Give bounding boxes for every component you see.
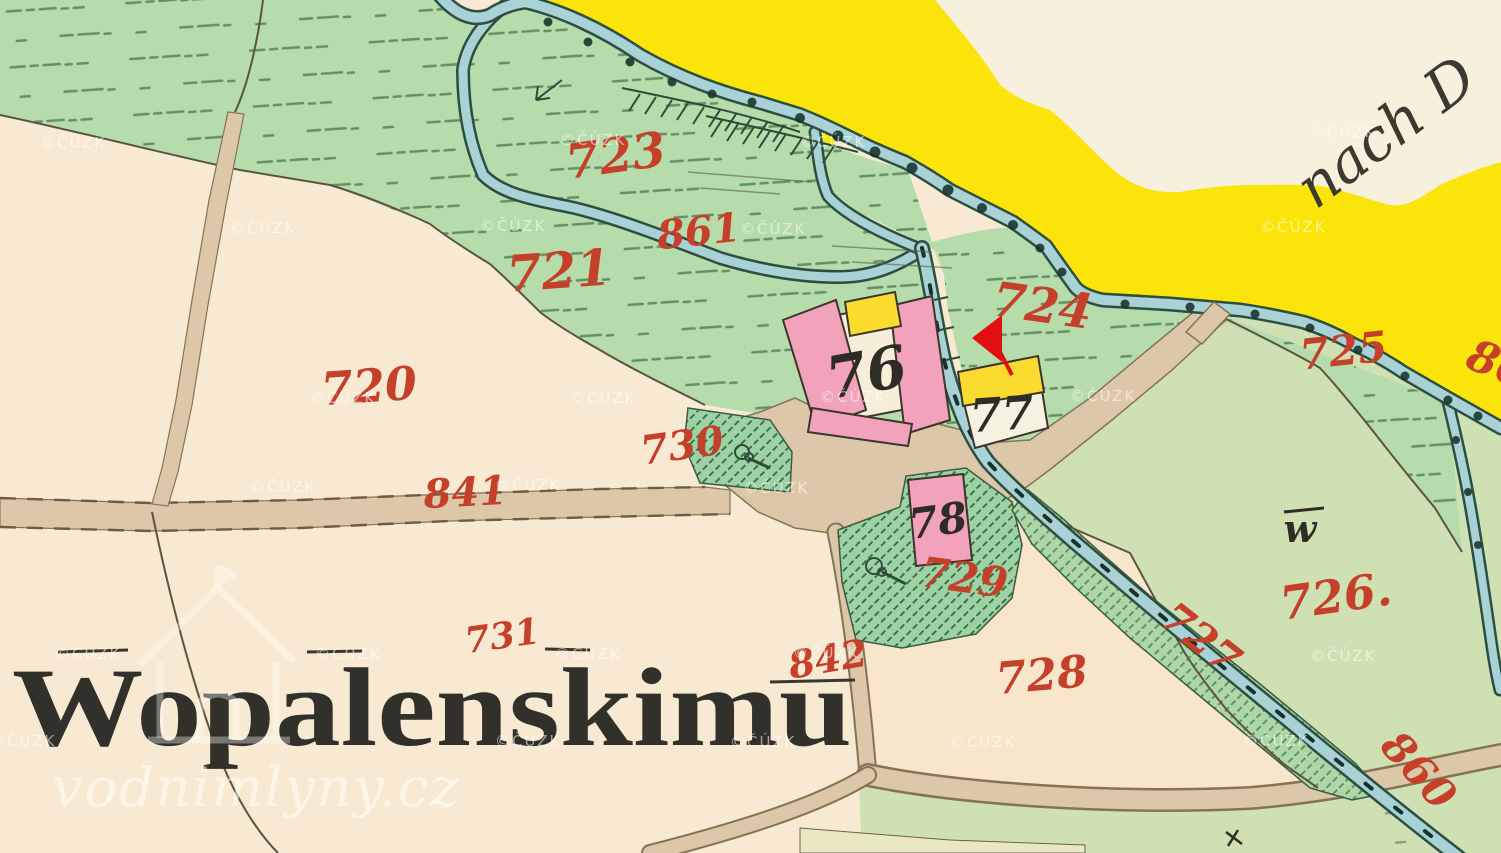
parcel-label-728: 728	[994, 646, 1090, 705]
watermark-cuzk: ©ČÚZK	[1310, 122, 1376, 141]
watermark-cuzk: ©ČÚZK	[55, 644, 121, 663]
watermark-cuzk: ©ČÚZK	[560, 130, 626, 149]
watermark-cuzk: ©ČÚZK	[0, 731, 56, 750]
map-viewport[interactable]: w 723 861 721 720 724 725 726. 727 72	[0, 0, 1501, 853]
parcel-label-720: 720	[319, 356, 419, 417]
watermark-cuzk: ©ČÚZK	[1243, 731, 1309, 750]
watermark-cuzk: ©ČÚZK	[1260, 217, 1326, 236]
watermark-cuzk: ©ČÚZK	[495, 731, 561, 750]
watermark-cuzk: ©ČÚZK	[950, 732, 1016, 751]
watermark-cuzk: ©ČÚZK	[1310, 646, 1376, 665]
building-label-78: 78	[906, 492, 971, 549]
watermark-cuzk: ©ČÚZK	[793, 643, 859, 662]
watermark-cuzk: ©ČÚZK	[820, 387, 886, 406]
watermark-cuzk: ©ČÚZK	[740, 219, 806, 238]
watermark-cuzk: ©ČÚZK	[40, 133, 106, 152]
watermark-site: vodnimlyny.cz	[52, 756, 461, 819]
watermark-cuzk: ©ČÚZK	[310, 388, 376, 407]
cadastral-map: w 723 861 721 720 724 725 726. 727 72	[0, 0, 1501, 853]
watermark-cuzk: ©ČÚZK	[250, 477, 316, 496]
watermark-cuzk: ©ČÚZK	[800, 132, 866, 151]
watermark-cuzk: ©ČÚZK	[555, 644, 621, 663]
watermark-cuzk: ©ČÚZK	[730, 732, 796, 751]
map-title: Wopalenskimu	[12, 646, 852, 770]
parcel-label-861: 861	[654, 204, 743, 260]
watermark-cuzk: ©ČÚZK	[743, 478, 809, 497]
parcel-label-725: 725	[1297, 322, 1389, 380]
watermark-cuzk: ©ČÚZK	[570, 388, 636, 407]
building-label-77: 77	[968, 385, 1036, 443]
watermark-cuzk: ©ČÚZK	[480, 216, 546, 235]
watermark-cuzk: ©ČÚZK	[230, 218, 296, 237]
watermark-cuzk: ©ČÚZK	[495, 475, 561, 494]
parcel-label-721: 721	[505, 237, 613, 303]
watermark-cuzk: ©ČÚZK	[315, 644, 381, 663]
watermark-cuzk: ©ČÚZK	[1070, 386, 1136, 405]
